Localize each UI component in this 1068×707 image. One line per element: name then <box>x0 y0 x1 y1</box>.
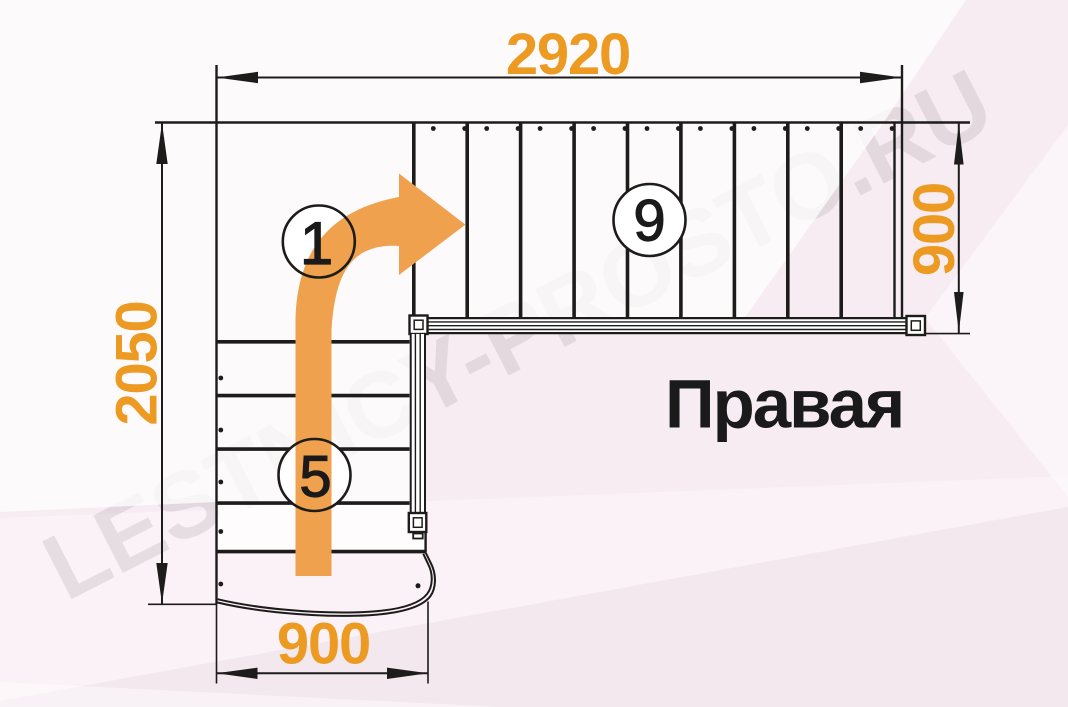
svg-text:Правая: Правая <box>665 366 903 443</box>
svg-text:9: 9 <box>633 189 665 254</box>
svg-text:5: 5 <box>299 445 331 510</box>
svg-text:2920: 2920 <box>506 22 630 87</box>
svg-text:2050: 2050 <box>105 301 170 425</box>
svg-text:900: 900 <box>902 183 967 276</box>
svg-text:1: 1 <box>300 210 333 277</box>
svg-text:900: 900 <box>277 612 370 677</box>
